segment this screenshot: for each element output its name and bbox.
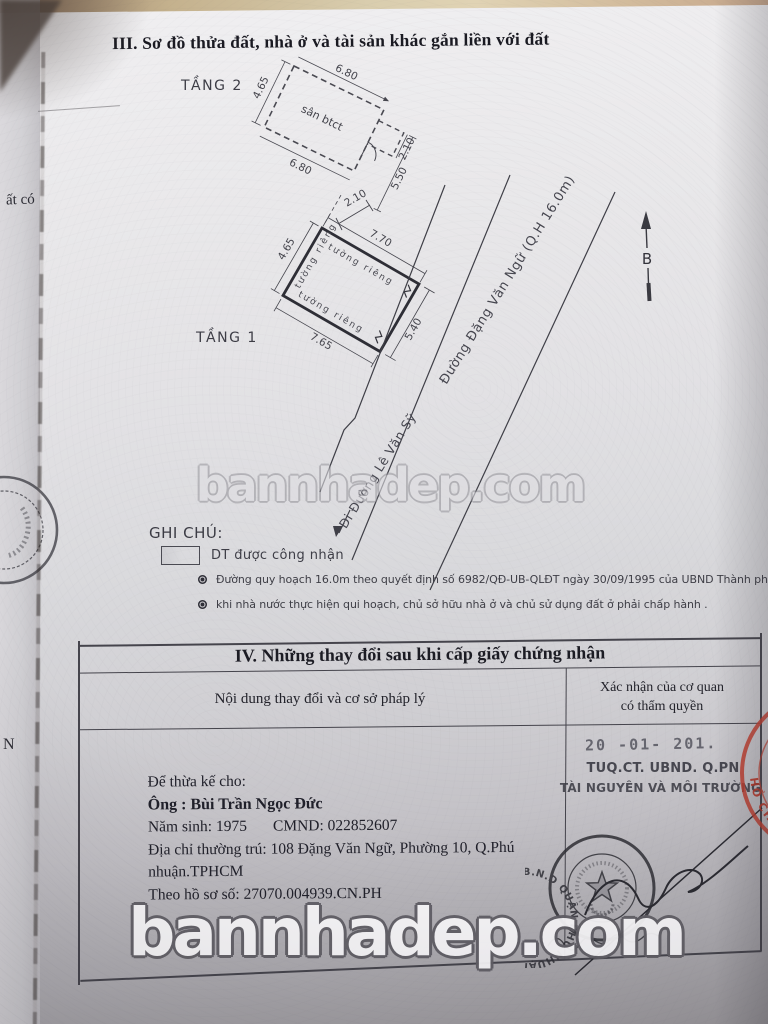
floor2-outline: 6.80 4.65 2.10 5.50 6.80 sân btct [229, 34, 438, 216]
legend-swatch-label: DT được công nhận [211, 548, 344, 563]
floor-gap-dimension: 2.10 [336, 187, 373, 230]
road-direction-arrowhead [333, 526, 343, 537]
floor1-dim-bottom: 7.65 [308, 331, 334, 353]
bullet-icon [198, 600, 207, 609]
floor1-wall-left-label: tường riêng [293, 221, 340, 291]
entry-address-line1: Địa chỉ thường trú: 108 Đặng Văn Ngữ, Ph… [148, 836, 578, 862]
column-header-content: Nội dung thay đổi và cơ sở pháp lý [120, 691, 520, 708]
legend-bullet-2: khi nhà nước thực hiện qui hoạch, chủ sở… [198, 598, 708, 611]
legend-title: GHI CHÚ: [149, 524, 223, 542]
floor2-dim-bottom: 6.80 [287, 156, 313, 177]
document-photo: ất có N III. Sơ đồ thửa đất, nhà ở và tà… [0, 0, 768, 1024]
floor1-dim-gap: 2.10 [342, 187, 368, 209]
legend-bullet-1: Đường quy hoạch 16.0m theo quyết định số… [198, 573, 768, 586]
watermark-middle: bannhadep.com [160, 458, 620, 512]
floor2-area-label: sân btct [299, 102, 345, 134]
legend-swatch [161, 546, 200, 565]
floor2-dim-right-ext: 2.10 [397, 136, 418, 162]
floor2-dim-right: 5.50 [389, 165, 410, 191]
entry-id-number: CMND: 022852607 [273, 817, 398, 835]
legend-bullet-2-text: khi nhà nước thực hiện qui hoạch, chủ sở… [216, 598, 708, 611]
entry-address-line2: nhuận.TPHCM [148, 858, 578, 884]
floor2-dim-left: 4.65 [251, 75, 272, 101]
watermark-bottom: bannhadep.com [70, 894, 742, 971]
corner-shadow [0, 0, 62, 92]
north-arrow: B [641, 211, 652, 301]
road-lines [320, 175, 615, 590]
floor1-dim-right: 5.40 [403, 316, 425, 342]
entry-birth-id: Năm sinh: 1975CMND: 022852607 [148, 813, 578, 839]
floor1-dim-top: 7.70 [367, 228, 393, 250]
legend-bullet-1-text: Đường quy hoạch 16.0m theo quyết định số… [216, 573, 768, 586]
red-stamp-partial: HỒ CHÍ MINH [718, 686, 768, 864]
floor1-outline: 7.70 7.65 5.40 4.65 tường riêng tường ri… [247, 180, 460, 387]
entry-name: Ông : Bùi Trần Ngọc Đức [148, 791, 578, 817]
change-entry: Để thừa kế cho: Ông : Bùi Trần Ngọc Đức … [148, 769, 579, 907]
north-label: B [642, 250, 652, 268]
entry-intro: Để thừa kế cho: [148, 769, 578, 795]
bullet-icon [198, 575, 207, 584]
floor1-dim-left: 4.65 [276, 236, 298, 262]
entry-birth: Năm sinh: 1975 [148, 818, 247, 836]
floor1-wall-bottom-label: tường riêng [296, 289, 366, 336]
